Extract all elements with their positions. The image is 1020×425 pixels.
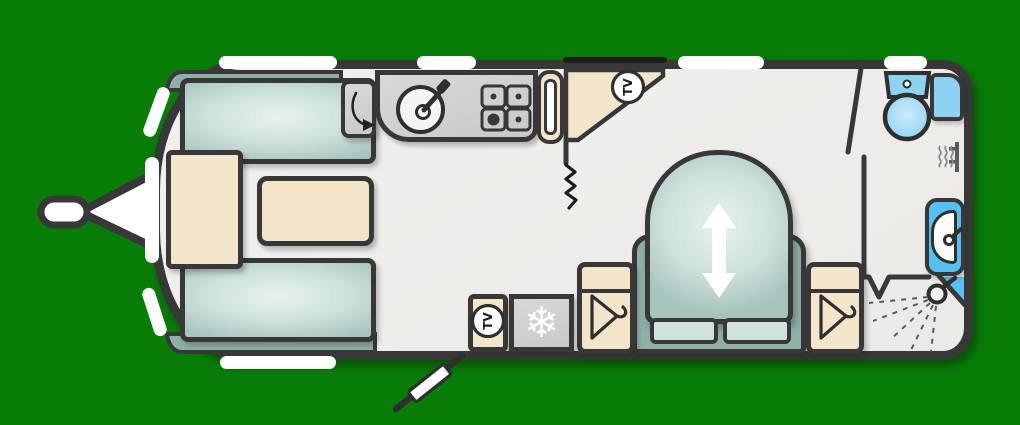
washbasin-icon xyxy=(931,210,957,264)
wardrobe-shelf-line xyxy=(811,267,859,293)
tow-hitch-coupling xyxy=(41,199,87,225)
bedroom-wardrobe xyxy=(806,262,864,354)
caravan-floorplan: ❄ xyxy=(0,0,1020,425)
front-sofa-bottom xyxy=(180,258,376,342)
window-strip xyxy=(219,56,337,69)
wardrobe xyxy=(577,262,635,354)
tow-hitch-frame xyxy=(80,173,155,248)
window-strip xyxy=(678,56,764,69)
door-swing-line xyxy=(396,356,462,409)
front-chest xyxy=(166,150,243,269)
wardrobe-shelf-line xyxy=(582,267,630,293)
window-strip xyxy=(145,157,159,263)
freezer-icon: ❄ xyxy=(524,302,559,344)
door-leaf xyxy=(408,364,451,402)
entrance-door xyxy=(396,356,462,409)
tall-cupboard-door xyxy=(544,79,557,135)
window-strip xyxy=(220,356,336,369)
tv-locker xyxy=(468,294,508,352)
fridge-freezer: ❄ xyxy=(509,294,574,352)
window-strip xyxy=(884,56,927,69)
worktop-flap xyxy=(341,80,376,138)
coffee-table xyxy=(257,176,374,246)
island-bed xyxy=(645,150,793,324)
bathroom-cabinet xyxy=(930,73,964,121)
awning-rail xyxy=(563,57,667,63)
sink-drain-icon xyxy=(415,104,431,120)
bed-cushion xyxy=(723,318,791,344)
window-strip xyxy=(417,56,476,69)
bed-cushion xyxy=(650,318,718,344)
